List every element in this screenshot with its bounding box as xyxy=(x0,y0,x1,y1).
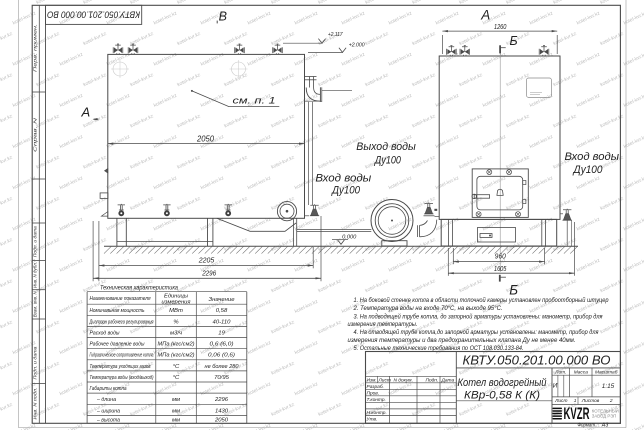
svg-text:Инв. N подл.: Инв. N подл. xyxy=(33,388,38,420)
svg-text:°С: °С xyxy=(173,375,180,381)
svg-text:Расход воды: Расход воды xyxy=(90,330,121,336)
svg-text:КВТУ.050.201.00.000 ВО: КВТУ.050.201.00.000 ВО xyxy=(463,352,611,367)
svg-text:мм: мм xyxy=(172,408,180,414)
svg-text:Выход воды: Выход воды xyxy=(356,141,416,153)
svg-text:А: А xyxy=(81,105,91,120)
svg-text:1. На боковой стенке котла в: 1. На боковой стенке котла в области топ… xyxy=(354,297,610,304)
svg-text:Рабочее давление воды: Рабочее давление воды xyxy=(90,342,146,348)
svg-text:МПа (кгс/см2): МПа (кгс/см2) xyxy=(158,353,195,359)
svg-text:– длина: – длина xyxy=(96,397,117,403)
svg-text:Вход воды: Вход воды xyxy=(315,173,371,185)
svg-text:см. п. 1: см. п. 1 xyxy=(233,95,276,105)
svg-text:1: 1 xyxy=(574,398,577,404)
svg-text:+2.000: +2.000 xyxy=(349,43,366,49)
svg-text:Котел водогрейный: Котел водогрейный xyxy=(458,377,547,389)
svg-text:Ду100: Ду100 xyxy=(373,155,401,167)
svg-text:Изм.: Изм. xyxy=(367,377,377,383)
svg-text:Лит.: Лит. xyxy=(554,369,566,375)
svg-text:4. На отводящей трубе котла,д: 4. На отводящей трубе котла,до запорной … xyxy=(354,329,600,336)
svg-text:И: И xyxy=(553,383,558,390)
svg-text:N докум.: N докум. xyxy=(394,377,413,383)
svg-text:Масштаб: Масштаб xyxy=(595,369,618,375)
svg-text:В: В xyxy=(219,9,227,23)
svg-text:70/95: 70/95 xyxy=(214,375,229,381)
svg-text:Справ. N: Справ. N xyxy=(33,117,38,152)
svg-text:КВТУ.050.201.00.000 ВО: КВТУ.050.201.00.000 ВО xyxy=(47,8,141,19)
svg-text:Вход воды: Вход воды xyxy=(565,151,620,163)
svg-text:мм: мм xyxy=(172,397,180,403)
svg-text:Значение: Значение xyxy=(209,297,236,303)
svg-text:МВт: МВт xyxy=(169,308,183,314)
svg-text:KVZR: KVZR xyxy=(564,405,590,423)
svg-text:3. На подводящей трубе котла,: 3. На подводящей трубе котла, до запорно… xyxy=(354,313,604,320)
svg-text:Разраб.: Разраб. xyxy=(367,384,384,390)
svg-text:Ду100: Ду100 xyxy=(330,185,361,197)
svg-text:2296: 2296 xyxy=(214,397,229,403)
svg-text:Наименование показателя: Наименование показателя xyxy=(90,296,152,302)
svg-text:0,58: 0,58 xyxy=(216,308,228,314)
svg-text:2. Температура воды на входе: 2. Температура воды на входе 70°С, на вы… xyxy=(353,305,503,312)
svg-text:Подп.: Подп. xyxy=(426,377,439,383)
svg-text:960: 960 xyxy=(495,251,506,260)
svg-text:40-110: 40-110 xyxy=(213,319,232,325)
svg-text:Пров.: Пров. xyxy=(367,391,380,397)
svg-text:м3/ч: м3/ч xyxy=(170,330,182,336)
svg-text:измерения температуры.: измерения температуры. xyxy=(348,321,418,328)
svg-text:5. Остальные технические треб: 5. Остальные технические требования по О… xyxy=(354,345,524,352)
svg-text:Масса: Масса xyxy=(574,369,589,375)
svg-text:Подп. и дата: Подп. и дата xyxy=(33,346,38,380)
svg-text:Перв. примен.: Перв. примен. xyxy=(33,24,38,72)
svg-text:Габариты котла: Габариты котла xyxy=(90,386,128,392)
svg-text:Гидравлическое сопротивление к: Гидравлическое сопротивление котла xyxy=(90,353,154,359)
svg-text:Взам. инв. N: Взам. инв. N xyxy=(33,291,38,318)
svg-text:Ду100: Ду100 xyxy=(572,164,604,176)
svg-text:2205: 2205 xyxy=(198,256,215,265)
svg-text:Лист: Лист xyxy=(554,398,567,404)
svg-text:КВр-0,58 К (К): КВр-0,58 К (К) xyxy=(464,389,540,401)
svg-text:2296: 2296 xyxy=(201,268,216,277)
svg-text:0,06 (0,6): 0,06 (0,6) xyxy=(208,353,235,359)
svg-text:2050: 2050 xyxy=(214,417,229,423)
svg-text:19: 19 xyxy=(218,330,225,336)
svg-text:А3: А3 xyxy=(601,423,609,429)
svg-text:°С: °С xyxy=(173,364,180,370)
svg-text:Техническая характеристика: Техническая характеристика xyxy=(100,284,178,291)
svg-text:Температура воды (вход/выход): Температура воды (вход/выход) xyxy=(90,375,154,381)
svg-text:Б: Б xyxy=(509,283,518,298)
svg-text:Утв.: Утв. xyxy=(367,417,378,423)
svg-text:Инв. N дубл.: Инв. N дубл. xyxy=(33,262,38,288)
svg-text:Б: Б xyxy=(510,34,518,48)
svg-text:Н.контр.: Н.контр. xyxy=(367,410,387,416)
svg-text:%: % xyxy=(173,319,178,325)
svg-text:+2.117: +2.117 xyxy=(328,32,343,38)
svg-text:Формат: Формат xyxy=(578,423,596,429)
svg-text:Листов: Листов xyxy=(581,398,600,404)
svg-text:2050: 2050 xyxy=(196,135,214,144)
svg-text:ЗАВОД РЭП: ЗАВОД РЭП xyxy=(592,413,617,418)
svg-text:Дата: Дата xyxy=(441,377,455,383)
svg-text:не более 280: не более 280 xyxy=(205,364,240,370)
svg-text:Лист: Лист xyxy=(378,377,391,383)
svg-text:1:15: 1:15 xyxy=(602,383,615,390)
svg-text:0,6 (6,0): 0,6 (6,0) xyxy=(210,342,234,348)
svg-text:– ширина: – ширина xyxy=(96,408,121,414)
svg-text:– высота: – высота xyxy=(96,417,120,423)
svg-text:1260: 1260 xyxy=(494,22,507,31)
svg-text:Температура уходящих газов: Температура уходящих газов xyxy=(90,364,151,370)
svg-text:мм: мм xyxy=(172,417,180,423)
svg-text:Диапазон рабочего регулировани: Диапазон рабочего регулирования xyxy=(89,319,154,325)
svg-text:МПа (кгс/см2): МПа (кгс/см2) xyxy=(158,342,195,348)
svg-text:1430: 1430 xyxy=(215,408,229,414)
svg-text:Т.контр.: Т.контр. xyxy=(367,397,386,403)
svg-text:1605: 1605 xyxy=(494,264,507,273)
svg-text:0.000: 0.000 xyxy=(342,234,357,240)
svg-text:Номинальная мощность: Номинальная мощность xyxy=(90,308,145,314)
svg-text:Подп. и дата: Подп. и дата xyxy=(33,226,38,257)
svg-text:измерения: измерения xyxy=(162,299,192,305)
svg-text:А: А xyxy=(480,7,490,22)
svg-text:2: 2 xyxy=(609,398,613,404)
svg-text:измерения температуры и два пр: измерения температуры и два предохраните… xyxy=(348,337,576,344)
